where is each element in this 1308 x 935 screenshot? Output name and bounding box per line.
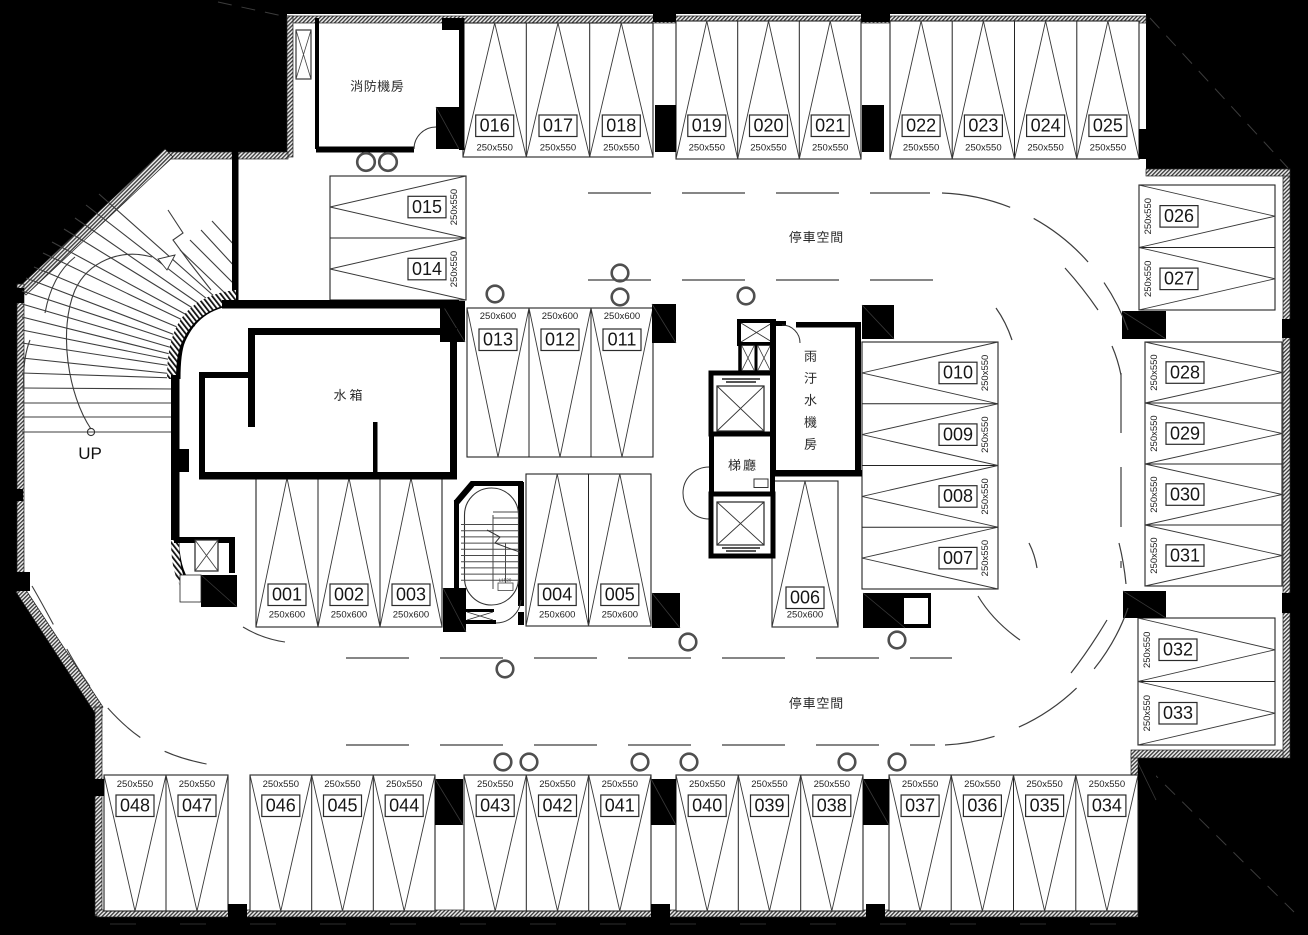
- svg-text:250x550: 250x550: [751, 779, 787, 790]
- svg-text:029: 029: [1170, 423, 1200, 443]
- svg-text:250x550: 250x550: [750, 143, 786, 154]
- svg-text:250x600: 250x600: [480, 311, 516, 322]
- svg-text:UP: UP: [78, 444, 102, 463]
- svg-text:017: 017: [543, 116, 573, 136]
- svg-text:250x600: 250x600: [542, 311, 578, 322]
- svg-text:005: 005: [605, 585, 635, 605]
- svg-text:250x550: 250x550: [964, 779, 1000, 790]
- svg-text:014: 014: [412, 259, 442, 279]
- svg-text:023: 023: [968, 116, 998, 136]
- svg-text:037: 037: [905, 796, 935, 816]
- svg-text:L1F20: L1F20: [499, 578, 512, 583]
- svg-text:003: 003: [396, 585, 426, 605]
- svg-text:036: 036: [967, 796, 997, 816]
- svg-text:028: 028: [1170, 362, 1200, 382]
- svg-text:250x550: 250x550: [602, 779, 638, 790]
- svg-text:250x550: 250x550: [324, 779, 360, 790]
- svg-text:250x550: 250x550: [1142, 632, 1153, 668]
- svg-text:027: 027: [1164, 269, 1194, 289]
- svg-text:250x550: 250x550: [980, 355, 991, 391]
- svg-text:250x600: 250x600: [787, 610, 823, 621]
- svg-text:250x550: 250x550: [903, 143, 939, 154]
- svg-text:250x550: 250x550: [477, 779, 513, 790]
- svg-text:038: 038: [817, 796, 847, 816]
- svg-text:250x600: 250x600: [602, 610, 638, 621]
- svg-text:250x550: 250x550: [449, 189, 460, 225]
- svg-text:010: 010: [943, 363, 973, 383]
- svg-text:024: 024: [1031, 116, 1061, 136]
- svg-text:020: 020: [753, 116, 783, 136]
- svg-text:019: 019: [692, 116, 722, 136]
- svg-text:250x600: 250x600: [393, 610, 429, 621]
- svg-text:250x550: 250x550: [1089, 779, 1125, 790]
- svg-text:018: 018: [606, 116, 636, 136]
- svg-text:250x550: 250x550: [1149, 415, 1160, 451]
- svg-text:250x550: 250x550: [1149, 537, 1160, 573]
- svg-text:250x550: 250x550: [689, 779, 725, 790]
- svg-text:250x550: 250x550: [117, 779, 153, 790]
- svg-text:044: 044: [389, 796, 419, 816]
- svg-text:250x550: 250x550: [179, 779, 215, 790]
- svg-text:250x550: 250x550: [1143, 198, 1154, 234]
- svg-text:021: 021: [815, 116, 845, 136]
- svg-text:250x550: 250x550: [980, 540, 991, 576]
- svg-text:042: 042: [542, 796, 572, 816]
- svg-text:250x550: 250x550: [539, 779, 575, 790]
- svg-text:250x600: 250x600: [604, 311, 640, 322]
- svg-text:026: 026: [1164, 206, 1194, 226]
- svg-text:250x550: 250x550: [1143, 261, 1154, 297]
- svg-text:032: 032: [1163, 640, 1193, 660]
- svg-text:045: 045: [327, 796, 357, 816]
- svg-text:007: 007: [943, 548, 973, 568]
- svg-text:046: 046: [266, 796, 296, 816]
- svg-text:033: 033: [1163, 703, 1193, 723]
- svg-text:250x550: 250x550: [1149, 476, 1160, 512]
- svg-text:250x550: 250x550: [902, 779, 938, 790]
- svg-text:250x550: 250x550: [386, 779, 422, 790]
- svg-text:041: 041: [605, 796, 635, 816]
- svg-text:250x550: 250x550: [814, 779, 850, 790]
- svg-text:250x550: 250x550: [1149, 354, 1160, 390]
- svg-text:022: 022: [906, 116, 936, 136]
- svg-text:250x600: 250x600: [269, 610, 305, 621]
- svg-text:250x550: 250x550: [540, 143, 576, 154]
- svg-text:008: 008: [943, 486, 973, 506]
- svg-text:040: 040: [692, 796, 722, 816]
- svg-text:250x550: 250x550: [1027, 143, 1063, 154]
- svg-text:250x550: 250x550: [263, 779, 299, 790]
- svg-text:009: 009: [943, 424, 973, 444]
- svg-text:250x550: 250x550: [1090, 143, 1126, 154]
- svg-text:250x550: 250x550: [603, 143, 639, 154]
- svg-text:250x550: 250x550: [1142, 695, 1153, 731]
- svg-text:250x550: 250x550: [1026, 779, 1062, 790]
- svg-text:031: 031: [1170, 545, 1200, 565]
- svg-text:016: 016: [480, 116, 510, 136]
- svg-text:011: 011: [608, 330, 637, 350]
- svg-text:001: 001: [272, 585, 302, 605]
- svg-text:048: 048: [120, 796, 150, 816]
- svg-text:250x600: 250x600: [539, 610, 575, 621]
- svg-text:006: 006: [790, 588, 820, 608]
- svg-text:250x550: 250x550: [476, 143, 512, 154]
- svg-text:250x550: 250x550: [689, 143, 725, 154]
- svg-text:013: 013: [483, 330, 513, 350]
- svg-text:030: 030: [1170, 484, 1200, 504]
- svg-text:039: 039: [754, 796, 784, 816]
- svg-text:047: 047: [182, 796, 212, 816]
- svg-text:250x550: 250x550: [980, 416, 991, 452]
- svg-text:250x600: 250x600: [331, 610, 367, 621]
- svg-text:004: 004: [542, 585, 572, 605]
- svg-text:043: 043: [480, 796, 510, 816]
- svg-text:035: 035: [1030, 796, 1060, 816]
- svg-text:250x550: 250x550: [449, 251, 460, 287]
- svg-text:250x550: 250x550: [980, 478, 991, 514]
- svg-text:250x550: 250x550: [965, 143, 1001, 154]
- svg-text:025: 025: [1093, 116, 1123, 136]
- svg-text:002: 002: [334, 585, 364, 605]
- svg-text:015: 015: [412, 197, 442, 217]
- svg-text:034: 034: [1092, 796, 1122, 816]
- svg-text:012: 012: [545, 330, 575, 350]
- svg-text:250x550: 250x550: [812, 143, 848, 154]
